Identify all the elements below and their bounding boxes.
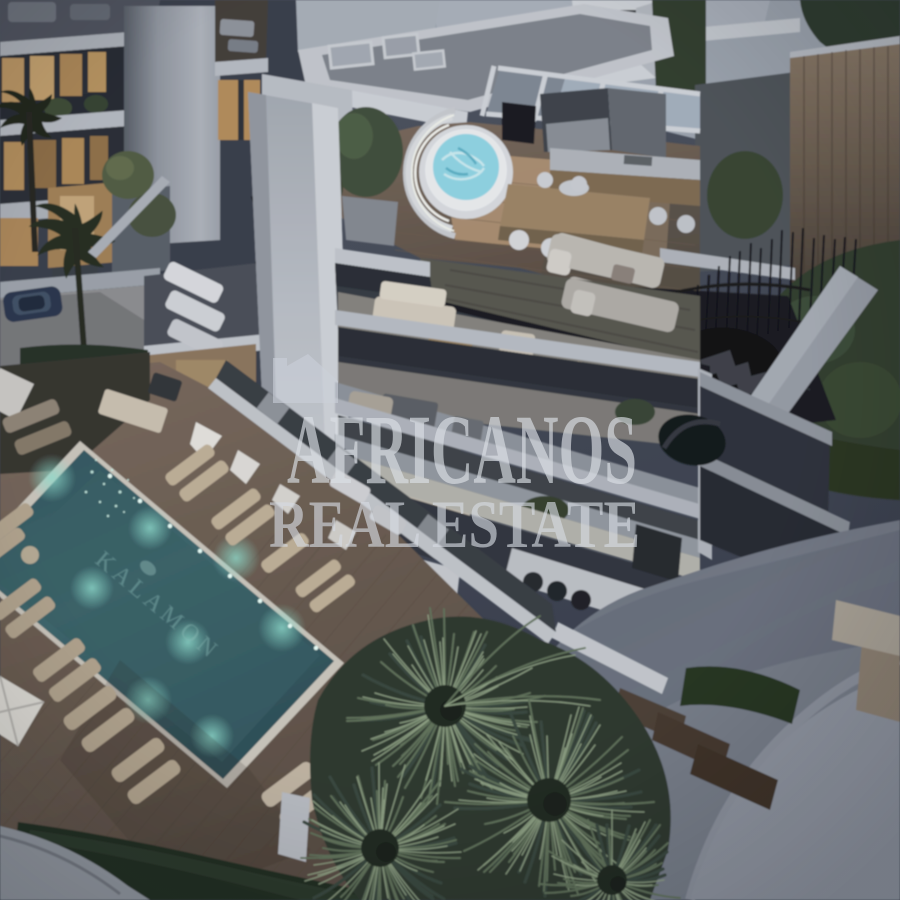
svg-text:REAL ESTATE: REAL ESTATE [269,486,640,562]
